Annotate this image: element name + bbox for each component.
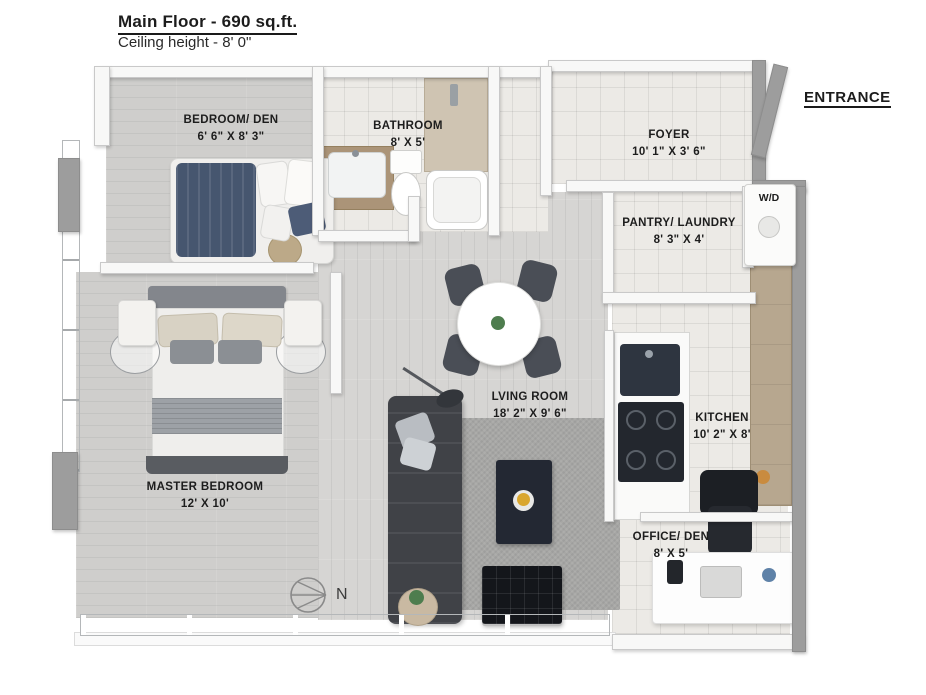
stove-burner — [626, 410, 646, 430]
desk-lamp-icon — [762, 568, 776, 582]
room-dims: 10' 1" X 3' 6" — [599, 144, 739, 161]
room-label-bathroom: BATHROOM 8' X 5' — [348, 118, 468, 151]
left-gray-pier-bottom — [52, 452, 78, 530]
floor-plan-page: Main Floor - 690 sq.ft. Ceiling height -… — [0, 0, 926, 695]
table-lamp-icon — [284, 300, 322, 346]
left-top-wall — [94, 66, 110, 146]
kitchen-cabinets — [750, 264, 792, 506]
hall-closet-wall — [408, 196, 420, 242]
kettle-icon — [756, 470, 770, 484]
foyer-top-wall — [548, 60, 762, 72]
room-label-master-bedroom: MASTER BEDROOM 12' X 10' — [115, 479, 295, 512]
room-dims: 8' X 5' — [601, 546, 741, 563]
compass: N — [288, 572, 364, 618]
master-right-wall — [330, 272, 342, 394]
bathtub-basin — [433, 177, 481, 223]
bathroom-sink — [328, 152, 386, 198]
hall-wall — [318, 230, 416, 242]
master-bed-frame — [146, 456, 288, 474]
side-table-plant-icon — [409, 590, 424, 605]
plan-title: Main Floor - 690 sq.ft. — [118, 12, 297, 35]
room-dims: 18' 2" X 9' 6" — [440, 406, 620, 423]
foyer-left-wall — [540, 66, 552, 196]
room-name: BEDROOM/ DEN — [141, 112, 321, 129]
room-name: FOYER — [599, 127, 739, 144]
room-label-pantry-laundry: PANTRY/ LAUNDRY 8' 3" X 4' — [594, 215, 764, 248]
stove-burner — [656, 450, 676, 470]
room-name: BATHROOM — [348, 118, 468, 135]
left-gray-pier-top — [58, 158, 80, 232]
yellow-flower-icon — [517, 493, 530, 506]
laptop-icon — [700, 566, 742, 598]
bathroom-right-wall — [488, 66, 500, 236]
desk-plant-icon — [667, 560, 683, 584]
top-wall — [100, 66, 550, 78]
kitchen-faucet-icon — [645, 350, 653, 358]
stove-burner — [626, 450, 646, 470]
shower-fixture-icon — [450, 84, 458, 106]
foyer-bottom-wall — [566, 180, 760, 192]
accent-pillow — [218, 340, 262, 364]
room-dims: 6' 6" X 8' 3" — [141, 129, 321, 146]
ceiling-height-label: Ceiling height - 8' 0" — [118, 34, 251, 51]
room-label-bedroom-den: BEDROOM/ DEN 6' 6" X 8' 3" — [141, 112, 321, 145]
room-name: KITCHEN — [662, 410, 782, 427]
kitchen-office-wall — [640, 512, 794, 522]
kitchen-left-wall — [604, 330, 614, 522]
room-name: PANTRY/ LAUNDRY — [594, 215, 764, 232]
room-dims: 12' X 10' — [115, 496, 295, 513]
bedroom-bathroom-wall — [312, 66, 324, 236]
room-name: MASTER BEDROOM — [115, 479, 295, 496]
accent-pillow — [170, 340, 214, 364]
room-label-kitchen: KITCHEN 10' 2" X 8' — [662, 410, 782, 443]
den-bed-blanket — [176, 163, 256, 257]
compass-icon — [288, 573, 332, 617]
table-lamp-icon — [118, 300, 156, 346]
master-bed-blanket — [152, 398, 282, 434]
pantry-bottom-wall — [602, 292, 756, 304]
washer-dryer-label: W/D — [744, 192, 794, 204]
room-name: LVING ROOM — [440, 389, 620, 406]
room-dims: 10' 2" X 8' — [662, 427, 782, 444]
room-label-foyer: FOYER 10' 1" X 3' 6" — [599, 127, 739, 160]
room-name: OFFICE/ DEN — [601, 529, 741, 546]
compass-north-label: N — [336, 586, 348, 604]
toilet-tank — [390, 150, 422, 174]
room-dims: 8' 3" X 4' — [594, 232, 764, 249]
room-dims: 8' X 5' — [348, 135, 468, 152]
table-plant-icon — [491, 316, 505, 330]
entrance-label: ENTRANCE — [804, 89, 891, 108]
room-label-office-den: OFFICE/ DEN 8' X 5' — [601, 529, 741, 562]
office-bottom-wall — [612, 634, 804, 650]
bedroom-master-wall — [100, 262, 314, 274]
room-label-living-room: LVING ROOM 18' 2" X 9' 6" — [440, 389, 620, 422]
